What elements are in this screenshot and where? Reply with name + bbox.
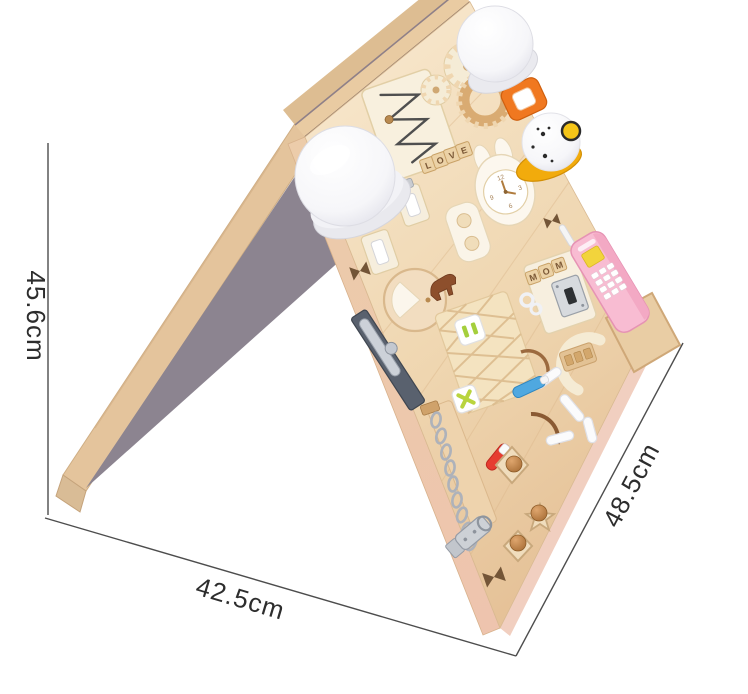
knob-ball	[531, 505, 547, 521]
height-dimension-label: 45.6cm	[21, 270, 51, 361]
gear-small	[421, 75, 451, 105]
busy-board-illustration: L O V E 12 3 6 9	[0, 0, 748, 694]
bell-button	[562, 122, 580, 140]
knob-ball	[510, 535, 526, 551]
door-knob	[426, 298, 431, 303]
product-photo: L O V E 12 3 6 9	[0, 0, 748, 694]
knob-ball	[506, 456, 522, 472]
